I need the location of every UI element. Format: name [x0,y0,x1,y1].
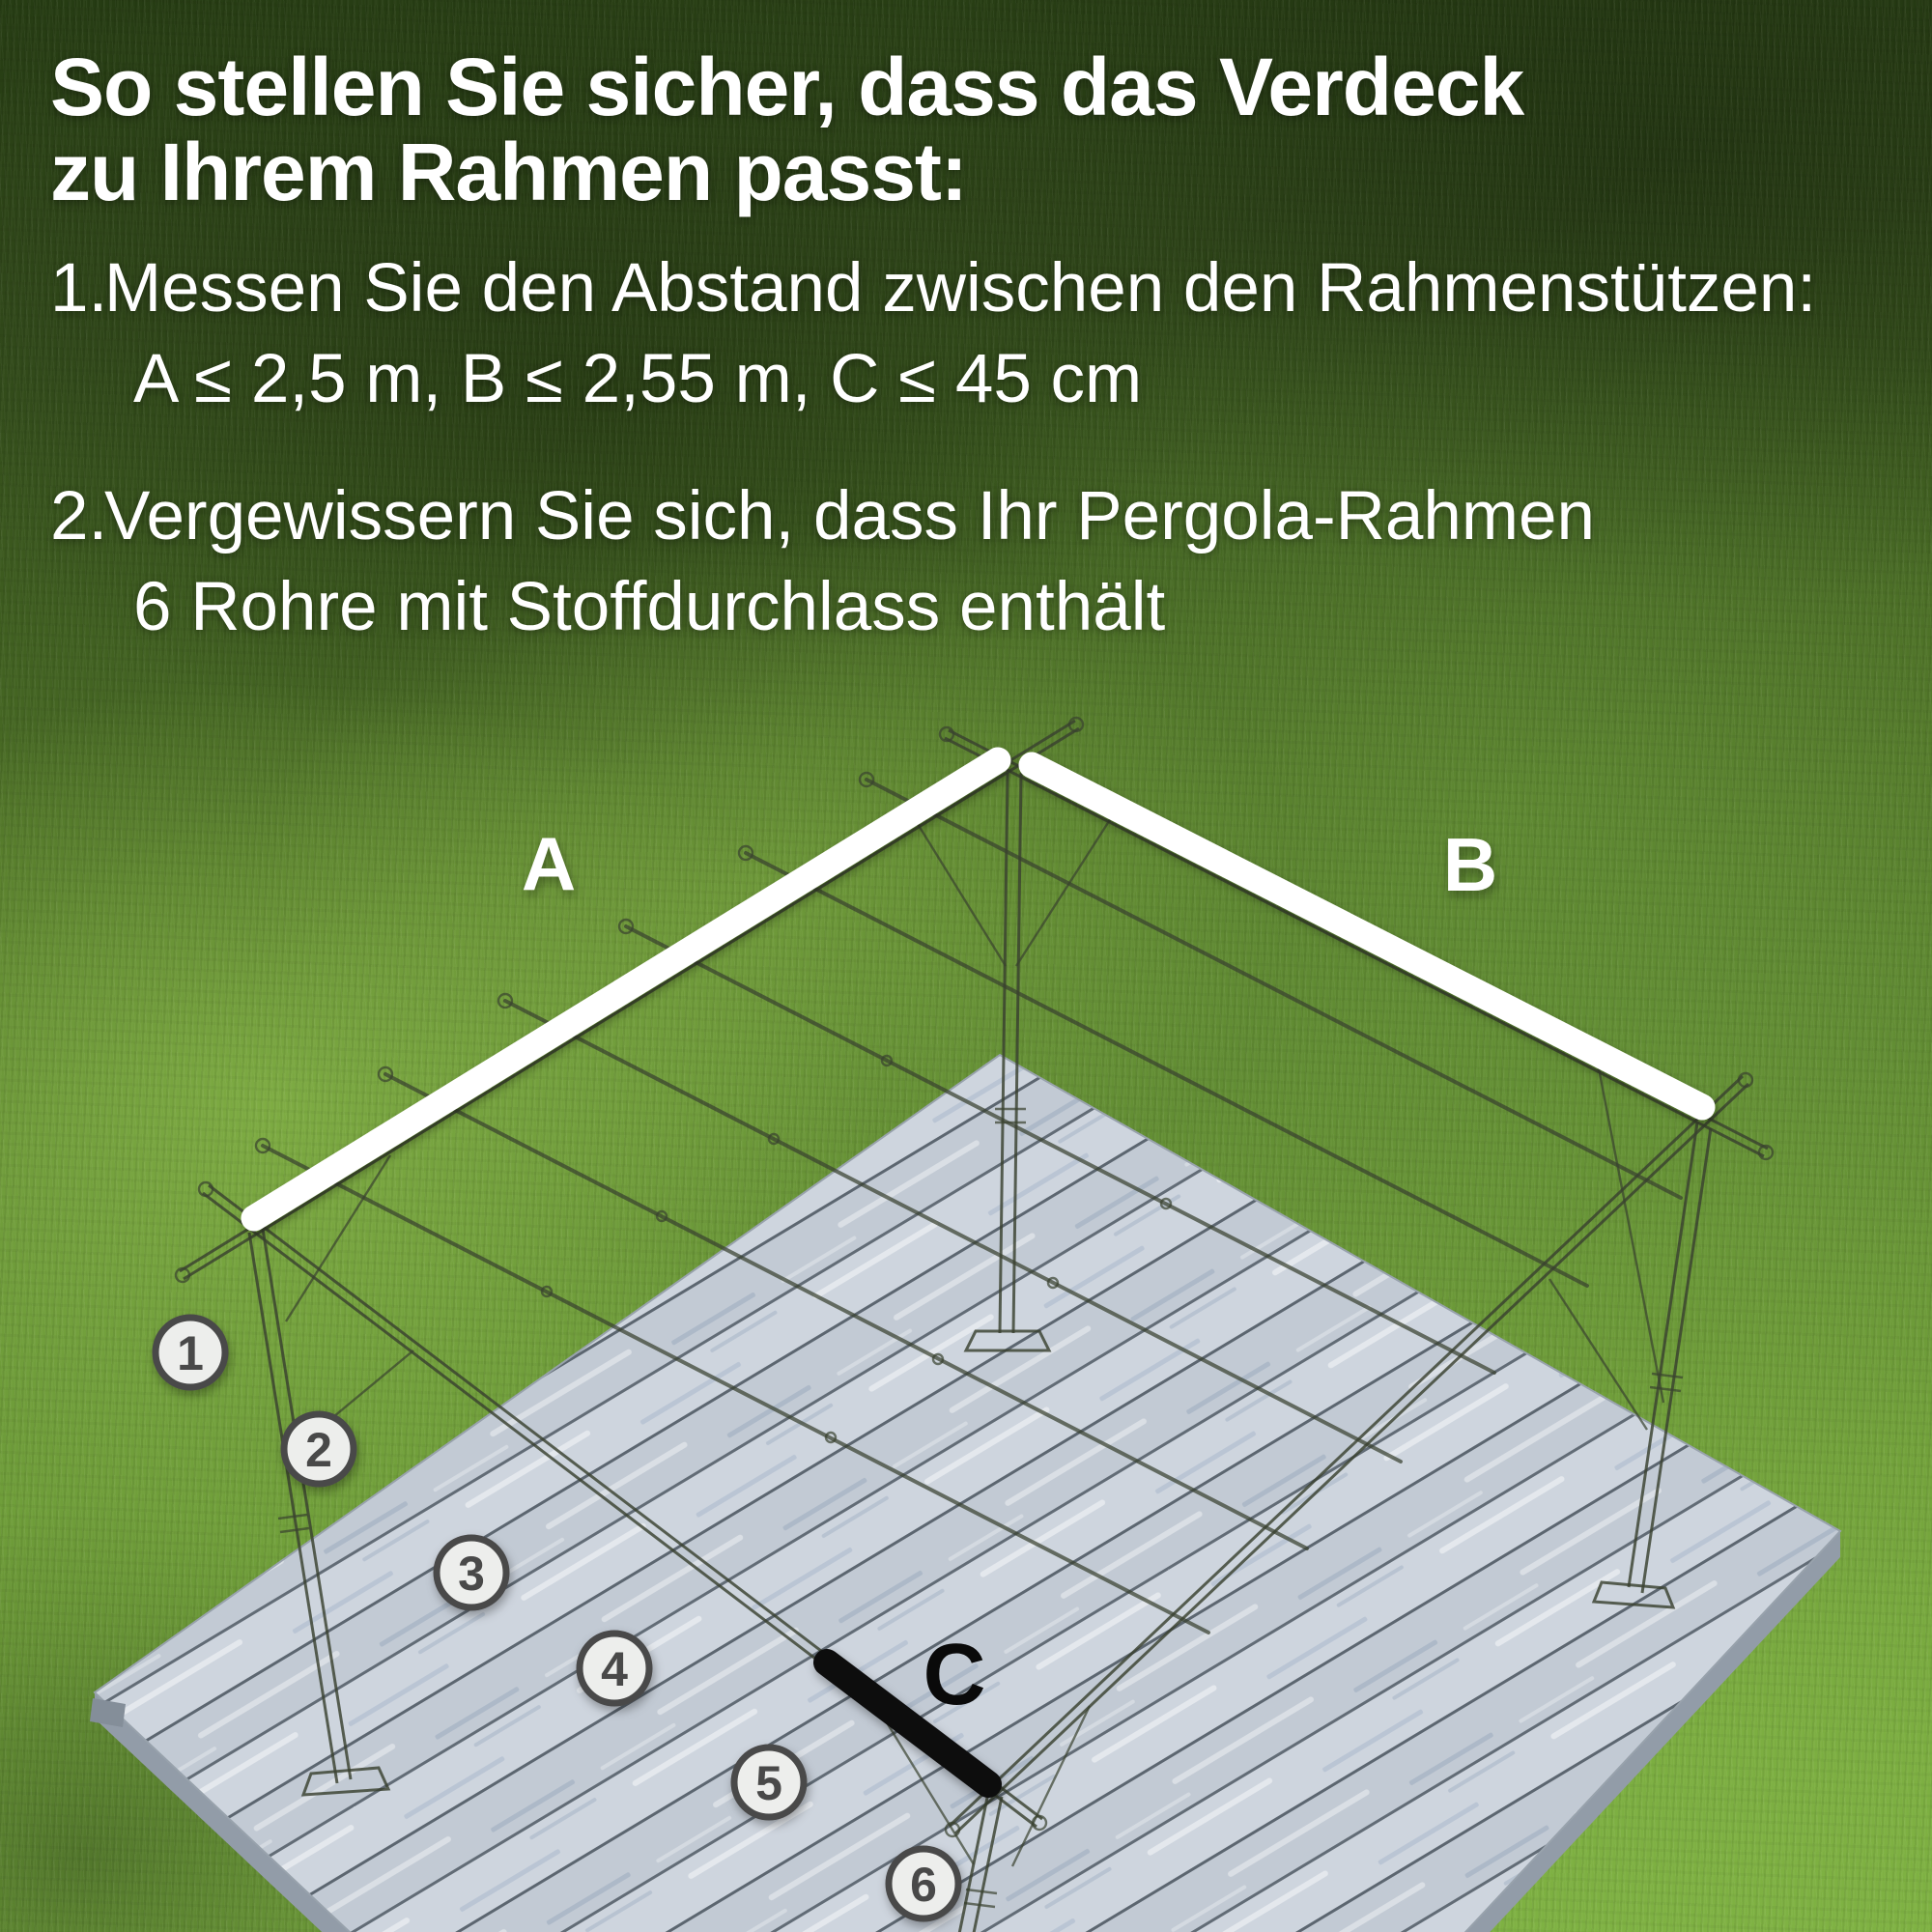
tube-marker-3: 3 [437,1538,506,1607]
page-title: So stellen Sie sicher, dass das Verdeck … [50,44,1523,214]
step-text: Messen Sie den Abstand zwischen den Rahm… [104,243,1816,425]
svg-text:2: 2 [305,1423,332,1477]
instruction-step-2: 2. Vergewissern Sie sich, dass Ihr Pergo… [50,471,1816,653]
instruction-steps: 1. Messen Sie den Abstand zwischen den R… [50,243,1816,653]
step-1-line-1: Messen Sie den Abstand zwischen den Rahm… [104,243,1816,334]
title-line-1: So stellen Sie sicher, dass das Verdeck [50,44,1523,129]
tube-marker-4: 4 [580,1634,649,1703]
title-line-2: zu Ihrem Rahmen passt: [50,129,1523,214]
step-2-line-2: 6 Rohre mit Stoffdurchlass enthält [104,562,1816,653]
svg-text:3: 3 [458,1547,485,1601]
tube-marker-6: 6 [889,1849,958,1918]
step-1-line-2: A ≤ 2,5 m, B ≤ 2,55 m, C ≤ 45 cm [104,334,1816,425]
instruction-graphic: A B C 1 2 3 4 5 [0,0,1932,1932]
dimension-label-a: A [522,821,576,906]
dimension-label-b: B [1443,822,1497,907]
step-number: 2. [50,471,104,653]
measure-bar-b [1032,765,1702,1107]
tube-marker-5: 5 [734,1747,804,1817]
svg-text:5: 5 [755,1756,782,1810]
instruction-step-1: 1. Messen Sie den Abstand zwischen den R… [50,243,1816,425]
svg-text:6: 6 [910,1858,937,1912]
tube-marker-1: 1 [156,1318,225,1387]
step-text: Vergewissern Sie sich, dass Ihr Pergola-… [104,471,1816,653]
tube-marker-2: 2 [284,1414,354,1484]
dimension-label-c: C [923,1627,986,1723]
svg-text:4: 4 [601,1642,628,1696]
step-number: 1. [50,243,104,425]
svg-text:1: 1 [177,1326,204,1380]
deck [90,1055,1840,1932]
step-2-line-1: Vergewissern Sie sich, dass Ihr Pergola-… [104,471,1816,562]
deck-surface [95,1055,1840,1932]
